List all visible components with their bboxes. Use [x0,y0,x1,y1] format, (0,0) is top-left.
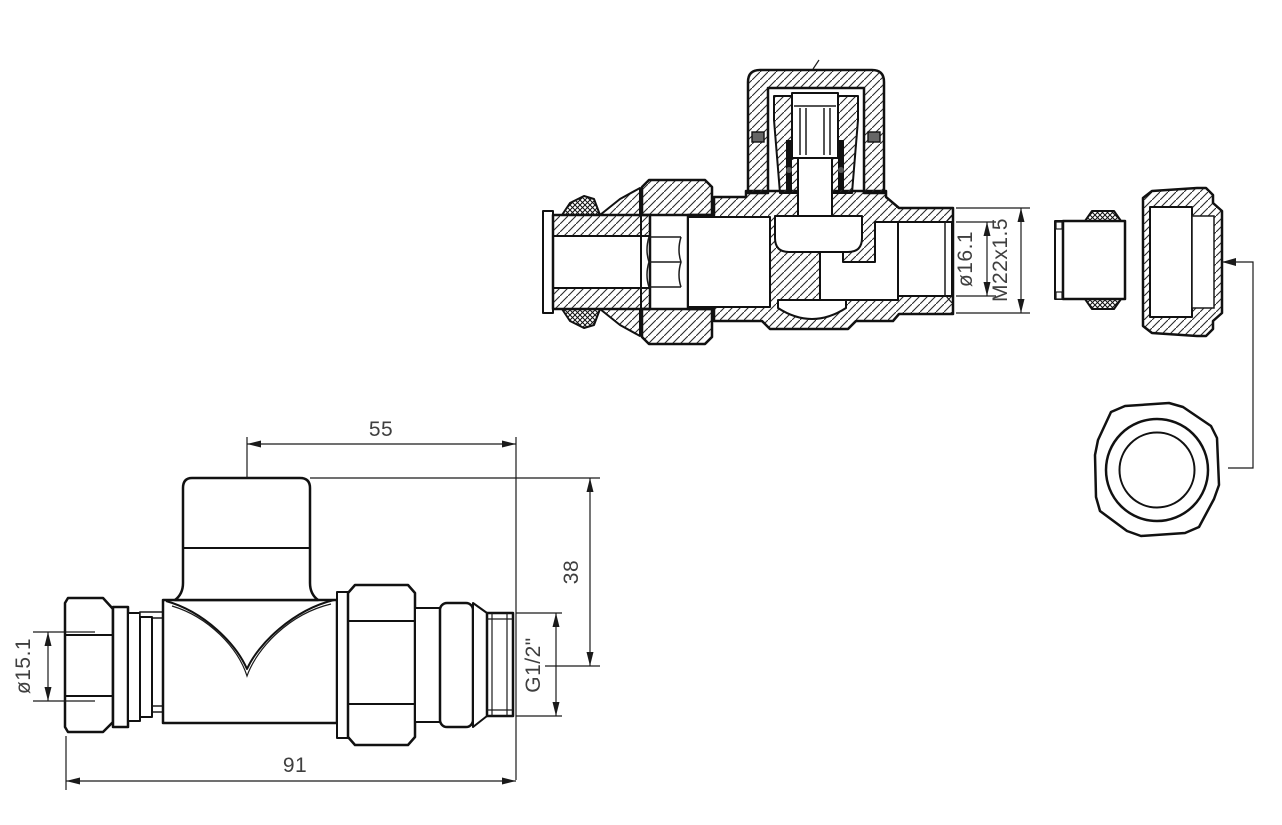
dim-label-union-thread: M22x1.5 [989,218,1012,302]
dim-label-g12: G1/2" [522,637,545,692]
dim-g12: G1/2" [516,613,562,716]
dim-91: 91 [66,736,516,790]
nut-front-view [1095,403,1219,536]
leader-arrow [1222,258,1236,266]
dim-label-91: 91 [283,754,307,777]
olive-section-top [562,196,600,215]
side-view: 55 38 ø15.1 G1/2" [12,418,600,790]
technical-drawing-canvas: ø16.1 M22x1.5 [0,0,1282,825]
outlet-tailpiece [415,603,513,727]
seal-ring-left [752,132,764,142]
outlet-union-nut [337,585,415,745]
cap-top-tick [813,60,819,69]
gland-dot-left [786,167,792,173]
dim-label-38: 38 [560,560,583,584]
valve-head-side [175,478,318,600]
section-view: ø16.1 M22x1.5 [543,60,1030,344]
accessory-parts [1055,188,1253,536]
inlet-rings [113,607,163,727]
dim-label-15-1: ø15.1 [12,638,35,694]
leader-line [1222,258,1253,468]
packing-left [786,140,792,190]
olive-section-bottom [562,309,600,328]
inlet-compression-nut [65,598,113,732]
dim-label-bore-diameter: ø16.1 [954,231,977,287]
packing-right [838,140,844,190]
tube-end-detail [647,237,681,287]
seal-ring-right [868,132,880,142]
drawing-sheet: ø16.1 M22x1.5 [0,0,1282,825]
valve-body-side [163,600,337,723]
compression-olive [1055,211,1125,309]
dim-label-55: 55 [369,418,393,441]
gland-dot-right [838,167,844,173]
compression-nut-section [1143,188,1222,336]
inlet-pipe-section [543,188,650,336]
